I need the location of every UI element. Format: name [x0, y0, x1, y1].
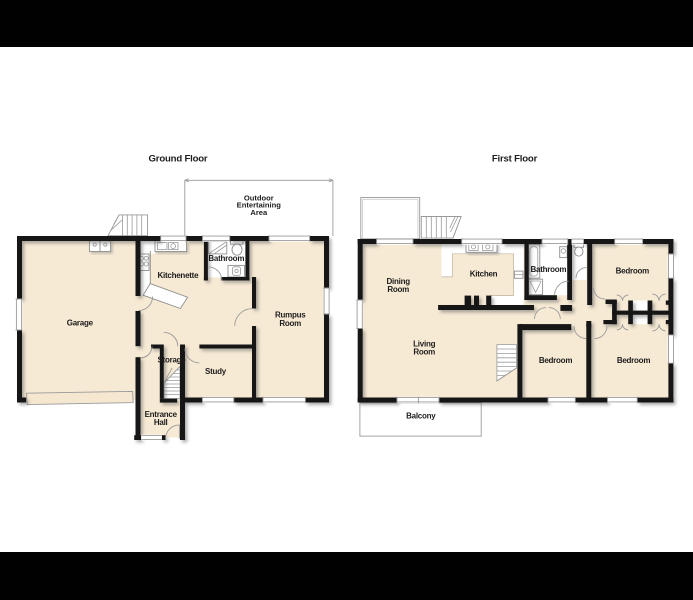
svg-text:First Floor: First Floor	[492, 154, 538, 165]
svg-text:Ground Floor: Ground Floor	[149, 154, 208, 165]
svg-text:Balcony: Balcony	[406, 411, 436, 420]
svg-text:Room: Room	[279, 319, 301, 328]
svg-text:Storage: Storage	[157, 355, 186, 364]
svg-text:Room: Room	[413, 347, 435, 356]
svg-text:Area: Area	[250, 208, 268, 217]
svg-text:Kitchen: Kitchen	[470, 269, 498, 278]
svg-text:Bedroom: Bedroom	[539, 356, 573, 365]
svg-text:Bedroom: Bedroom	[616, 267, 650, 276]
svg-text:Study: Study	[205, 367, 227, 376]
svg-text:Bedroom: Bedroom	[617, 356, 651, 365]
svg-text:Kitchenette: Kitchenette	[157, 271, 199, 280]
svg-text:Room: Room	[387, 285, 409, 294]
svg-text:Hall: Hall	[154, 418, 168, 427]
svg-text:Bathroom: Bathroom	[208, 254, 244, 263]
svg-text:Bathroom: Bathroom	[531, 265, 567, 274]
svg-text:Garage: Garage	[67, 319, 94, 328]
